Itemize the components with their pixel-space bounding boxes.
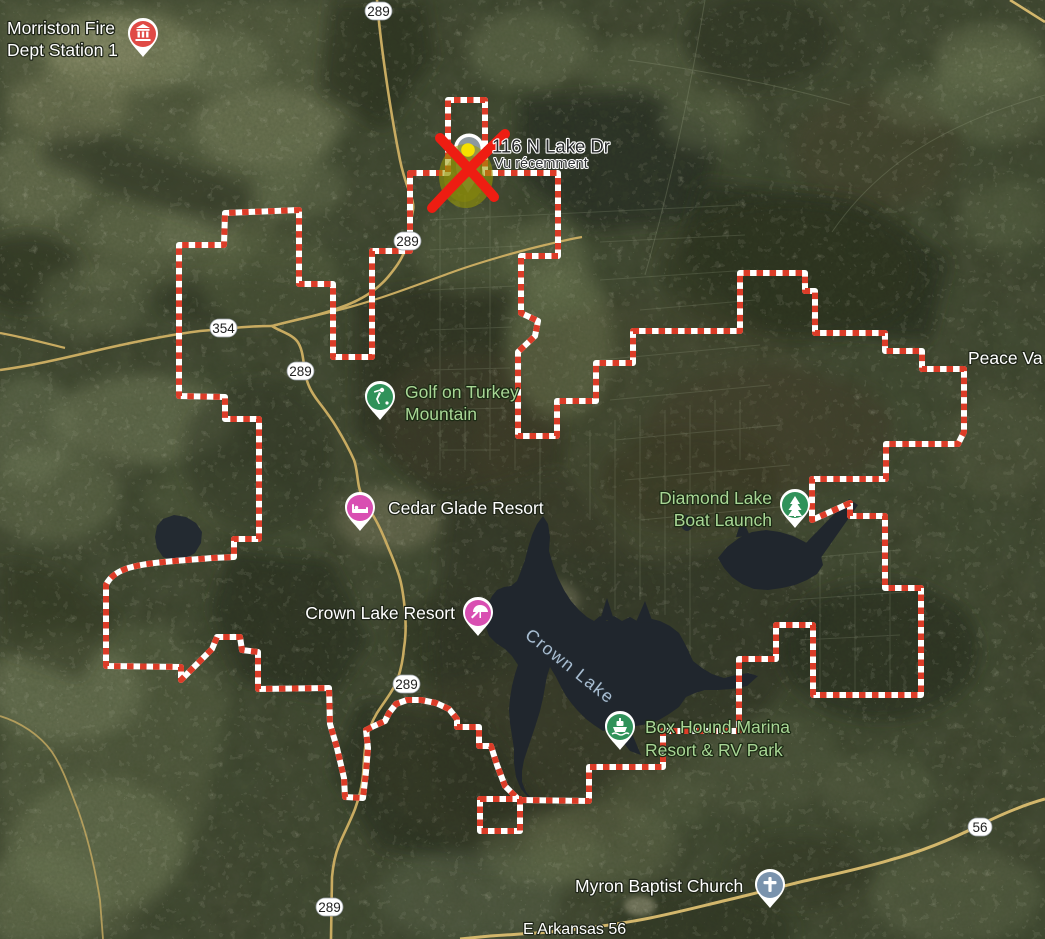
svg-text:289: 289 bbox=[367, 4, 390, 19]
svg-text:E Arkansas 56: E Arkansas 56 bbox=[523, 921, 626, 938]
svg-text:289: 289 bbox=[289, 364, 312, 379]
svg-text:Box Hound Marina: Box Hound Marina bbox=[645, 717, 790, 737]
svg-text:56: 56 bbox=[972, 820, 987, 835]
svg-text:Peace Va: Peace Va bbox=[968, 348, 1043, 368]
svg-text:Cedar Glade Resort: Cedar Glade Resort bbox=[388, 498, 544, 518]
svg-text:116 N Lake Dr: 116 N Lake Dr bbox=[492, 136, 610, 157]
svg-text:Boat Launch: Boat Launch bbox=[674, 510, 772, 530]
svg-text:Mountain: Mountain bbox=[405, 404, 477, 424]
svg-text:Vu récemment: Vu récemment bbox=[494, 156, 588, 172]
svg-text:289: 289 bbox=[318, 900, 341, 915]
svg-text:Myron Baptist Church: Myron Baptist Church bbox=[575, 876, 743, 896]
svg-text:Resort & RV Park: Resort & RV Park bbox=[645, 740, 783, 760]
svg-text:Crown Lake Resort: Crown Lake Resort bbox=[305, 603, 455, 623]
svg-text:289: 289 bbox=[395, 677, 418, 692]
svg-text:Dept Station 1: Dept Station 1 bbox=[7, 40, 118, 60]
svg-text:Morriston Fire: Morriston Fire bbox=[7, 18, 115, 38]
svg-text:289: 289 bbox=[396, 234, 419, 249]
svg-text:Diamond Lake: Diamond Lake bbox=[659, 488, 772, 508]
svg-text:Golf on Turkey: Golf on Turkey bbox=[405, 382, 519, 402]
svg-text:354: 354 bbox=[212, 321, 235, 336]
